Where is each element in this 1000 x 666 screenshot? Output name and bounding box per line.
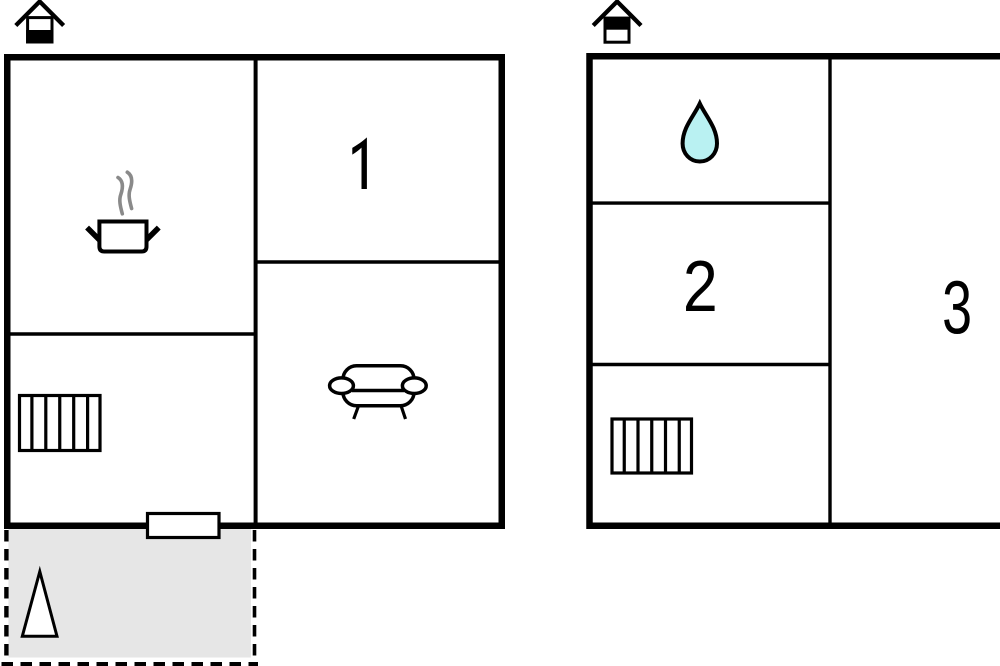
svg-text:3: 3 [942,266,972,350]
svg-text:2: 2 [683,247,718,327]
